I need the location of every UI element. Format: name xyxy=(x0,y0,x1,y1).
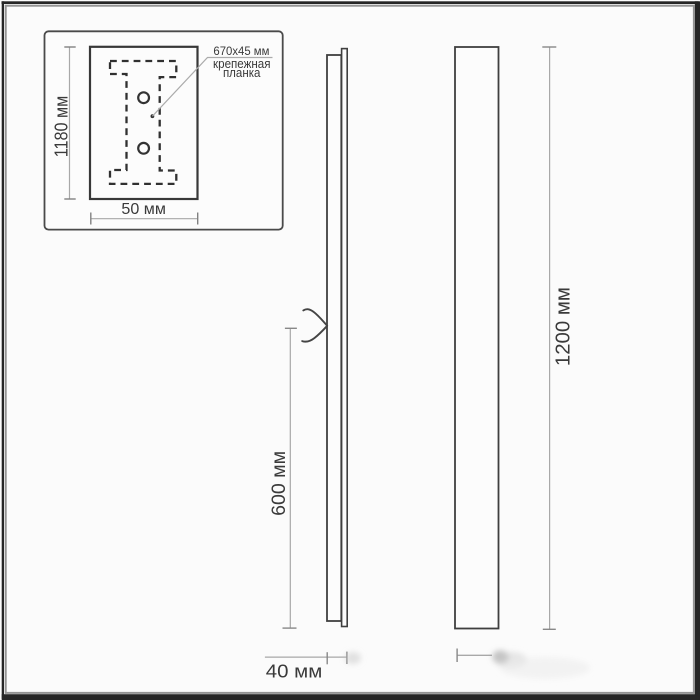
svg-text:40 мм: 40 мм xyxy=(266,661,323,682)
svg-text:1200 мм: 1200 мм xyxy=(552,287,575,366)
svg-text:50 мм: 50 мм xyxy=(121,201,166,218)
svg-text:600 мм: 600 мм xyxy=(269,451,290,516)
svg-text:планка: планка xyxy=(223,66,261,80)
svg-text:670x45 мм: 670x45 мм xyxy=(213,44,269,58)
svg-text:1180 мм: 1180 мм xyxy=(51,96,71,158)
